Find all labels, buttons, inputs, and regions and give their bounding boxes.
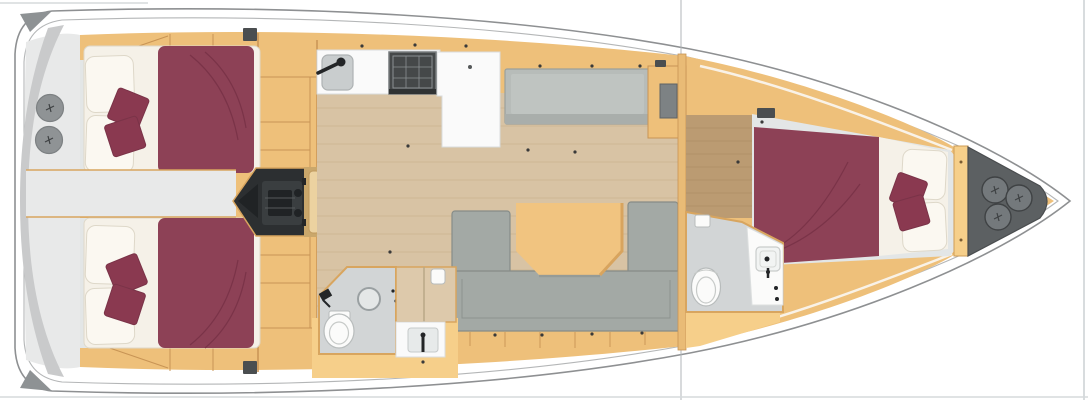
aft-head-door-hinge-1	[391, 289, 394, 292]
sofa-left-arm	[452, 211, 510, 277]
aft-shower	[396, 267, 456, 322]
sofa-seat	[452, 271, 681, 331]
aft-cabin-port-hatch-vent	[243, 28, 257, 41]
aft-shower-floor	[396, 267, 456, 322]
sofa-right-arm	[628, 202, 678, 277]
bow-hatch-1	[982, 177, 1008, 203]
forward-head-toilet	[692, 268, 721, 306]
port-settee	[505, 64, 650, 124]
forward-shelf-vent	[757, 108, 775, 118]
stern-hatch-1	[37, 95, 64, 122]
table-top	[516, 203, 622, 275]
stove-handle	[389, 89, 436, 94]
aft-cabin-port-blanket	[158, 46, 254, 173]
forward-floor-dot	[736, 160, 739, 163]
forward-head-fitting	[695, 215, 710, 227]
salon-table	[516, 203, 622, 276]
stern-hatch-2	[36, 127, 63, 154]
stair-post-1	[302, 178, 306, 185]
port-settee-surface	[511, 74, 644, 114]
aft-head-mirror	[358, 288, 380, 310]
side-cabinet-vent	[655, 60, 666, 67]
stair-post-2	[302, 219, 306, 226]
aft-passage-floor	[26, 170, 236, 217]
yacht-floorplan	[0, 0, 1088, 400]
aft-cabin-starboard-hatch-vent	[243, 361, 257, 374]
side-cabinet-panel	[660, 84, 677, 118]
aft-shower-control	[431, 269, 445, 284]
port-settee-front	[505, 114, 650, 124]
main-bulkhead	[678, 54, 686, 350]
aft-head-toilet	[324, 311, 354, 348]
galley-stove	[389, 52, 436, 94]
aft-cabin-starboard-wardrobe	[258, 218, 317, 354]
aft-cabin-port-wardrobe	[258, 36, 317, 172]
forward-cabin-floor	[686, 115, 753, 218]
counter-fitting-dot	[468, 65, 472, 69]
bow-hatch-3	[985, 204, 1011, 230]
floorplan-canvas	[0, 0, 1088, 400]
aft-cabin-port	[80, 28, 317, 173]
bow-hatch-2	[1006, 185, 1032, 211]
aft-cabin-starboard-blanket	[158, 218, 254, 348]
aft-head	[312, 267, 458, 378]
aft-head-vanity	[396, 322, 445, 364]
